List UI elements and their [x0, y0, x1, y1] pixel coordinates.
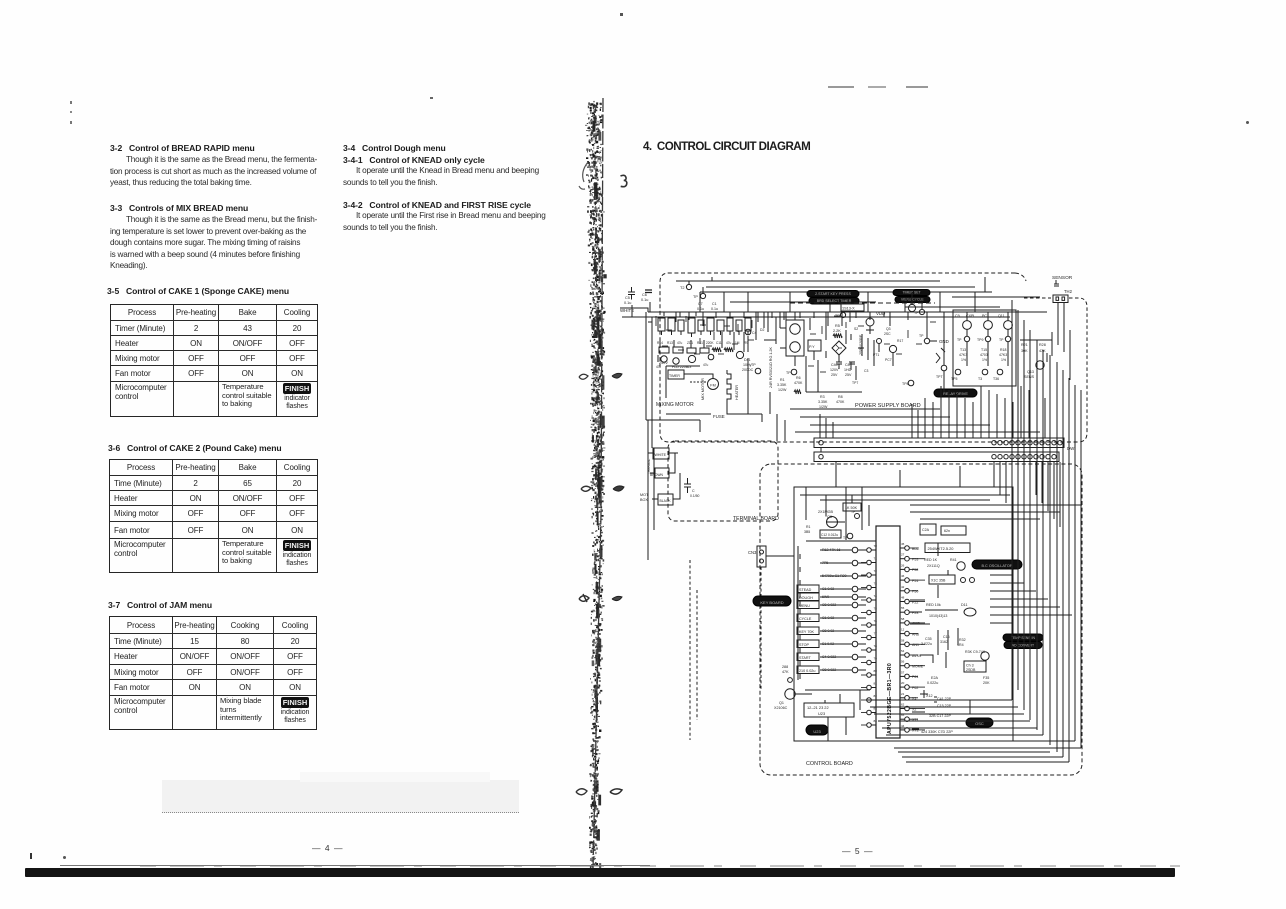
- svg-text:C35: C35: [925, 637, 932, 641]
- svg-text:45: 45: [901, 542, 905, 546]
- svg-text:62: 62: [901, 703, 905, 707]
- svg-text:TP: TP: [851, 510, 856, 514]
- svg-text:C6: C6: [642, 293, 647, 297]
- svg-text:MENU: MENU: [799, 604, 810, 608]
- svg-text:1HD: 1HD: [844, 368, 852, 372]
- svg-text:1S13-X: 1S13-X: [842, 307, 855, 311]
- svg-text:MIXING MOTOR: MIXING MOTOR: [656, 402, 694, 408]
- svg-text:P22: P22: [912, 600, 918, 604]
- svg-text:R13: R13: [667, 341, 673, 345]
- svg-text:START: START: [799, 656, 811, 660]
- svg-text:48: 48: [901, 596, 905, 600]
- svg-text:26: 26: [901, 563, 905, 567]
- svg-text:220K: 220K: [706, 341, 714, 345]
- svg-text:FLD 220V: FLD 220V: [672, 365, 689, 369]
- svg-text:STEAD: STEAD: [799, 588, 812, 592]
- svg-text:CYCLE: CYCLE: [799, 617, 812, 621]
- svg-text:R6: R6: [796, 376, 801, 380]
- svg-text:TP: TP: [786, 371, 791, 375]
- svg-text:THERMAL: THERMAL: [647, 459, 651, 474]
- svg-text:Q8: Q8: [827, 515, 832, 519]
- svg-text:D41: D41: [744, 358, 751, 362]
- svg-text:3B5: 3B5: [804, 530, 810, 534]
- svg-text:BOX: BOX: [640, 498, 648, 502]
- svg-text:P.Y: P.Y: [809, 345, 815, 349]
- svg-text:0.022u: 0.022u: [927, 681, 938, 685]
- svg-text:210 0.02u: 210 0.02u: [799, 669, 815, 673]
- svg-text:F35: F35: [983, 676, 989, 680]
- svg-text:424 330K C7D 22P: 424 330K C7D 22P: [921, 730, 953, 734]
- svg-text:T3: T3: [978, 377, 982, 381]
- svg-text:0.1u: 0.1u: [641, 298, 648, 302]
- svg-text:0.1u: 0.1u: [624, 301, 631, 305]
- svg-text:20K: 20K: [983, 681, 990, 685]
- svg-text:30K: 30K: [1021, 349, 1028, 353]
- svg-text:AVSS: AVSS: [912, 654, 922, 658]
- svg-text:47: 47: [656, 365, 660, 369]
- svg-text:POWER SUPPLY BOARD: POWER SUPPLY BOARD: [855, 403, 921, 409]
- svg-text:84: 84: [874, 719, 878, 723]
- svg-text:OSC: OSC: [975, 721, 984, 726]
- svg-text:TP: TP: [693, 295, 698, 299]
- svg-text:C16: C16: [943, 635, 950, 639]
- svg-text:P50: P50: [912, 590, 918, 594]
- svg-text:MOME: MOME: [912, 665, 924, 669]
- svg-text:0.1/50: 0.1/50: [690, 494, 700, 498]
- svg-text:E2A: E2A: [931, 676, 939, 680]
- svg-text:25V: 25V: [845, 373, 852, 377]
- svg-text:TP: TP: [751, 363, 756, 367]
- svg-text:12–21 23 22: 12–21 23 22: [807, 705, 829, 710]
- svg-text:75: 75: [874, 607, 878, 611]
- svg-text:44: 44: [901, 724, 905, 728]
- svg-text:MIX MOTOR: MIX MOTOR: [701, 378, 705, 400]
- svg-text:C8: C8: [845, 363, 850, 367]
- svg-text:DOUGH: DOUGH: [799, 596, 813, 600]
- svg-text:R17: R17: [897, 339, 903, 343]
- svg-text:R1: R1: [806, 525, 811, 529]
- svg-text:250V: 250V: [659, 361, 668, 365]
- svg-text:1%: 1%: [1001, 358, 1006, 362]
- svg-text:120V: 120V: [830, 368, 839, 372]
- svg-text:DW: DW: [1067, 446, 1075, 451]
- svg-text:T15: T15: [981, 348, 987, 352]
- svg-text:T2: T2: [680, 286, 684, 290]
- svg-text:Q1: Q1: [779, 701, 784, 705]
- svg-text:12: 12: [901, 628, 905, 632]
- svg-text:TP7: TP7: [852, 381, 858, 385]
- svg-text:KEY BOARD: KEY BOARD: [760, 600, 783, 605]
- svg-text:TP8: TP8: [902, 382, 909, 386]
- svg-text:24R RV53021D RG 1.2K: 24R RV53021D RG 1.2K: [769, 347, 773, 388]
- svg-text:80: 80: [874, 669, 878, 673]
- svg-text:P61: P61: [912, 675, 918, 679]
- svg-text:1/2W: 1/2W: [778, 388, 787, 392]
- svg-text:70: 70: [874, 544, 878, 548]
- svg-text:47K3: 47K3: [999, 353, 1007, 357]
- svg-text:470K: 470K: [794, 381, 803, 385]
- svg-text:73: 73: [874, 582, 878, 586]
- svg-text:WHITE: WHITE: [655, 453, 667, 457]
- svg-text:42: 42: [901, 585, 905, 589]
- svg-text:PC7: PC7: [885, 358, 892, 362]
- svg-text:58: 58: [901, 638, 905, 642]
- svg-text:TP9: TP9: [977, 338, 983, 342]
- svg-text:C2A: C2A: [922, 528, 930, 532]
- svg-text:STOP: STOP: [799, 643, 810, 647]
- svg-text:2X111Q: 2X111Q: [927, 564, 940, 568]
- svg-text:71: 71: [874, 557, 878, 561]
- svg-text:TEMP SENS IN: TEMP SENS IN: [1011, 636, 1035, 640]
- svg-text:58: 58: [901, 617, 905, 621]
- svg-text:47K3: 47K3: [959, 353, 967, 357]
- svg-text:27: 27: [901, 553, 905, 557]
- svg-text:BLACK: BLACK: [660, 499, 672, 503]
- svg-text:72: 72: [874, 569, 878, 573]
- svg-text:10Hy: 10Hy: [743, 363, 752, 367]
- svg-text:82: 82: [874, 694, 878, 698]
- svg-text:C1: C1: [712, 302, 717, 306]
- svg-text:CN3: CN3: [748, 550, 757, 555]
- svg-text:3162: 3162: [940, 640, 948, 644]
- svg-text:55: 55: [901, 606, 905, 610]
- svg-text:FM: FM: [710, 384, 715, 388]
- svg-text:P51: P51: [912, 579, 918, 583]
- svg-text:288: 288: [782, 665, 788, 669]
- svg-text:RELAY DRIVE: RELAY DRIVE: [943, 392, 968, 396]
- svg-text:BROWN: BROWN: [650, 473, 664, 477]
- svg-text:T13: T13: [960, 348, 966, 352]
- svg-text:R32: R32: [959, 638, 966, 642]
- svg-text:C11: C11: [716, 341, 722, 345]
- svg-text:C7: C7: [698, 302, 703, 306]
- svg-text:TERMINAL BOARD: TERMINAL BOARD: [733, 516, 779, 522]
- svg-text:76: 76: [874, 619, 878, 623]
- svg-text:FUSE: FUSE: [713, 414, 725, 419]
- svg-text:Ch 3: Ch 3: [966, 664, 974, 668]
- svg-text:C5: C5: [625, 296, 630, 300]
- svg-text:25V: 25V: [831, 373, 838, 377]
- svg-text:BUZ: BUZ: [912, 547, 920, 551]
- svg-text:C: C: [692, 489, 695, 493]
- svg-text:Q3: Q3: [886, 327, 891, 331]
- svg-text:R3: R3: [820, 395, 825, 399]
- svg-text:254WXT2.5.20: 254WXT2.5.20: [928, 546, 955, 551]
- svg-text:R8: R8: [838, 395, 843, 399]
- svg-text:54: 54: [901, 649, 905, 653]
- svg-text:56: 56: [901, 660, 905, 664]
- svg-text:KEY 70K: KEY 70K: [799, 630, 814, 634]
- svg-text:2.START KEY PRESS: 2.START KEY PRESS: [815, 292, 851, 296]
- svg-text:TP: TP: [999, 338, 1004, 342]
- svg-text:C9: C9: [955, 314, 960, 318]
- svg-text:1%: 1%: [982, 358, 987, 362]
- svg-text:C3: C3: [864, 369, 868, 373]
- svg-text:PT1: PT1: [873, 353, 879, 357]
- svg-text:47u: 47u: [703, 363, 709, 367]
- svg-text:47u: 47u: [726, 341, 732, 345]
- svg-text:X12: X12: [926, 694, 933, 698]
- svg-text:TIMER: TIMER: [669, 374, 680, 378]
- svg-text:TH2: TH2: [1064, 289, 1073, 294]
- svg-text:X2106C: X2106C: [774, 706, 788, 710]
- svg-text:AD CONVERT: AD CONVERT: [1012, 644, 1034, 648]
- svg-text:R1: R1: [780, 378, 785, 382]
- svg-text:3.35K: 3.35K: [777, 383, 787, 387]
- svg-text:APU7522BGE—BR1—3R0: APU7522BGE—BR1—3R0: [887, 663, 893, 734]
- svg-text:P53: P53: [912, 558, 918, 562]
- svg-text:57: 57: [901, 670, 905, 674]
- svg-text:CONTROL BOARD: CONTROL BOARD: [806, 761, 853, 767]
- svg-text:0.1u: 0.1u: [711, 307, 718, 311]
- svg-text:S2: S2: [854, 327, 858, 331]
- svg-text:81: 81: [874, 682, 878, 686]
- svg-text:200DC: 200DC: [742, 368, 754, 372]
- svg-text:C4: C4: [752, 331, 756, 335]
- svg-text:21: 21: [901, 692, 905, 696]
- svg-text:X2: X2: [912, 707, 916, 711]
- svg-text:77: 77: [874, 632, 878, 636]
- svg-text:R28: R28: [1039, 343, 1046, 347]
- svg-text:0.1u: 0.1u: [697, 307, 704, 311]
- svg-text:2.2K: 2.2K: [833, 329, 841, 333]
- svg-text:470K: 470K: [836, 400, 845, 404]
- svg-text:AN1: AN1: [912, 643, 919, 647]
- svg-text:D11: D11: [961, 603, 968, 607]
- svg-text:20: 20: [901, 681, 905, 685]
- svg-text:TP5: TP5: [951, 377, 957, 381]
- svg-text:C12 47u: C12 47u: [903, 297, 917, 301]
- svg-text:Q11: Q11: [998, 314, 1005, 318]
- svg-text:U23: U23: [813, 729, 821, 734]
- svg-text:R41: R41: [950, 558, 957, 562]
- svg-text:47u: 47u: [677, 341, 683, 345]
- svg-text:R5: R5: [835, 324, 840, 328]
- svg-text:T36: T36: [993, 377, 999, 381]
- svg-text:74: 74: [874, 594, 878, 598]
- svg-text:3.35K: 3.35K: [818, 400, 828, 404]
- svg-text:RED 1K: RED 1K: [924, 558, 938, 562]
- svg-text:4703: 4703: [980, 353, 988, 357]
- svg-text:TP: TP: [957, 338, 962, 342]
- svg-text:47K: 47K: [782, 670, 789, 674]
- svg-text:2SDB: 2SDB: [966, 668, 976, 672]
- svg-text:D2: D2: [760, 328, 764, 332]
- svg-text:P52: P52: [912, 568, 918, 572]
- svg-text:2SC: 2SC: [884, 332, 891, 336]
- svg-text:P62: P62: [912, 686, 918, 690]
- svg-text:U23: U23: [818, 711, 825, 716]
- svg-text:SENS: SENS: [1024, 375, 1035, 379]
- svg-text:SENSOR: SENSOR: [1052, 275, 1073, 281]
- svg-text:78: 78: [874, 644, 878, 648]
- svg-text:MOT: MOT: [640, 493, 649, 497]
- svg-text:X1C 35B: X1C 35B: [931, 579, 946, 583]
- svg-text:AN8: AN8: [912, 632, 919, 636]
- svg-text:HEATER: HEATER: [735, 385, 739, 400]
- svg-text:32B C17 22P: 32B C17 22P: [929, 714, 951, 718]
- svg-text:46: 46: [901, 574, 905, 578]
- svg-text:C12 0.012u: C12 0.012u: [821, 533, 838, 537]
- svg-text:R18: R18: [1000, 348, 1006, 352]
- svg-text:RED 10k: RED 10k: [926, 603, 941, 607]
- svg-text:TPT: TPT: [936, 375, 943, 379]
- svg-text:62n: 62n: [944, 529, 950, 533]
- svg-text:TP: TP: [914, 311, 919, 315]
- svg-text:1/2W: 1/2W: [819, 405, 828, 409]
- svg-text:79: 79: [874, 657, 878, 661]
- svg-text:TP: TP: [919, 334, 924, 338]
- svg-text:1%: 1%: [961, 358, 966, 362]
- svg-text:1010(43)13: 1010(43)13: [929, 614, 947, 618]
- svg-text:ZD1: ZD1: [687, 341, 693, 345]
- svg-text:B.C OSCILLATOR: B.C OSCILLATOR: [981, 564, 1012, 568]
